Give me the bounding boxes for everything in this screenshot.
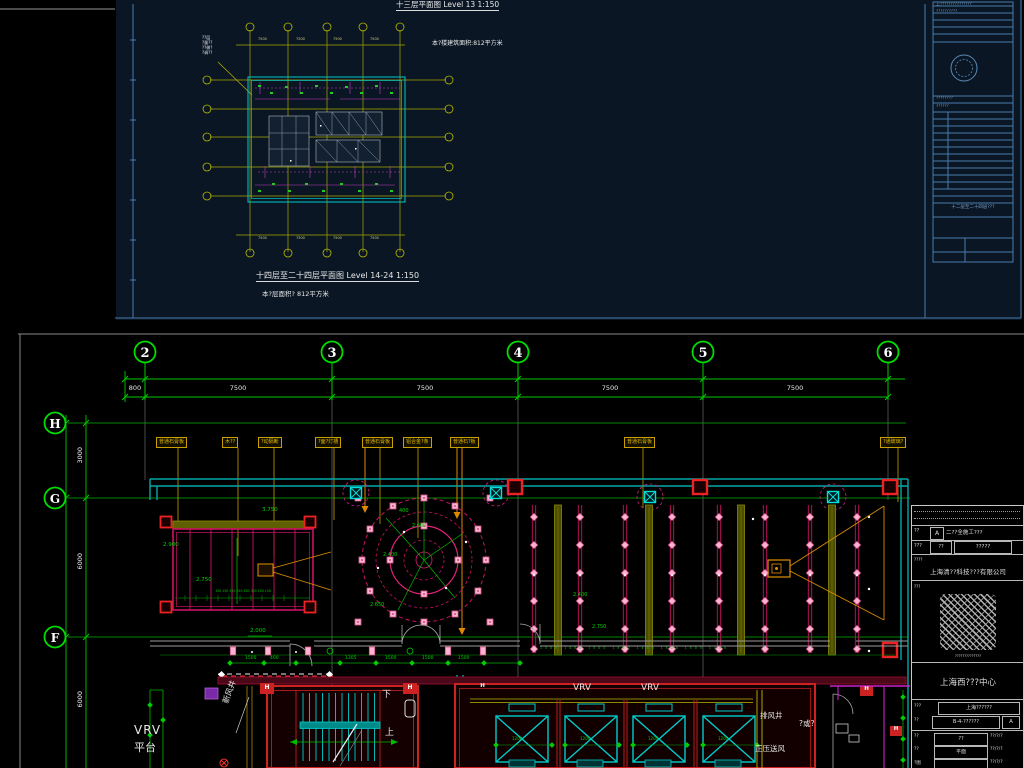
titleblock-row-label: ?? bbox=[914, 747, 919, 752]
elevation-label: 2.400 bbox=[383, 553, 397, 558]
titleblock-row-label: ??? bbox=[914, 543, 922, 549]
revision-cell: A bbox=[1002, 716, 1020, 729]
pressurized-air-label: 正压送风 bbox=[755, 745, 785, 753]
dim-col: 800 bbox=[122, 385, 148, 392]
revision-cell: A bbox=[930, 527, 944, 540]
titleblock-row-label: ?? bbox=[914, 734, 919, 739]
shaft-dim: 1200 bbox=[512, 737, 522, 741]
plan-dim: 7500 bbox=[258, 38, 267, 42]
dim-row: 6000 bbox=[77, 549, 84, 573]
titleblock-firm-line: ???????? bbox=[936, 96, 1012, 100]
sheet-title-level14-24: 十四层至二十四层平面图 Level 14-24 1:150 bbox=[256, 272, 419, 282]
vrv-zone-label: VRV bbox=[641, 684, 659, 693]
floor-dim: 1500 bbox=[422, 657, 433, 662]
floor-dim: 1500 bbox=[458, 657, 469, 662]
elevation-label: 2.650 bbox=[370, 603, 384, 608]
ceiling-callout: 普通石膏板 bbox=[156, 437, 187, 448]
titleblock-cell: ?? bbox=[934, 733, 988, 746]
titleblock-divider bbox=[912, 554, 1024, 555]
hall-dim-row: 1500 1450 1500 1500 1450 1500 1500 1450 bbox=[540, 647, 729, 650]
grid-bubble-H: H bbox=[44, 417, 66, 431]
floor-dim: 1500 bbox=[245, 657, 256, 662]
column-tag: H bbox=[260, 685, 274, 691]
ceiling-callout: ?动隔断 bbox=[258, 437, 282, 448]
grid-bubble-5: 5 bbox=[692, 346, 714, 361]
titleblock-date: ??/?/? bbox=[990, 734, 1003, 739]
column-tag: H bbox=[476, 684, 489, 690]
titleblock-header-line: 上??????????????? bbox=[936, 2, 1012, 6]
floor-dim: 1305 bbox=[345, 657, 356, 662]
titleblock-row-label: ?? bbox=[914, 528, 919, 534]
drawing-number-cell: B-4-?????? bbox=[932, 716, 1000, 729]
elevation-label: 2.750 bbox=[592, 625, 606, 630]
dim-col: 7500 bbox=[772, 385, 818, 392]
plan-note-line: ?调?? bbox=[202, 51, 212, 55]
titleblock-divider bbox=[912, 580, 1024, 581]
grid-bubble-2: 2 bbox=[134, 346, 156, 361]
grid-bubble-3: 3 bbox=[321, 346, 343, 361]
plan-dim: 7500 bbox=[296, 237, 305, 241]
stair-down-label: 下 bbox=[382, 691, 391, 700]
ceiling-callout: 普通石?板 bbox=[450, 437, 479, 448]
dim-row: 3000 bbox=[77, 443, 84, 467]
dim-row: 6000 bbox=[77, 687, 84, 711]
titleblock-row-label: ?? bbox=[914, 718, 919, 723]
titleblock-sheet-title: 十二层至二十四层??? bbox=[934, 206, 1012, 211]
ceiling-callout: 铝合金?条 bbox=[403, 437, 432, 448]
titleblock-note: ???? bbox=[914, 557, 923, 562]
sheet-title-level13: 十三层平面图 Level 13 1:150 bbox=[396, 1, 499, 11]
titleblock-date: ??/?/? bbox=[990, 747, 1003, 752]
elevation-label: 2.000 bbox=[250, 629, 266, 635]
elevation-label: 3.750 bbox=[262, 508, 278, 514]
plan-dim: 7500 bbox=[333, 237, 342, 241]
bottom-sheet-linework bbox=[18, 334, 1024, 768]
plan-dim: 7500 bbox=[296, 38, 305, 42]
vrv-zone-label: VRV bbox=[573, 684, 591, 693]
plan-dim: 7500 bbox=[370, 38, 379, 42]
column-tag: H bbox=[860, 687, 873, 693]
titleblock-cell: ?? bbox=[930, 541, 952, 554]
top-sheet-linework bbox=[0, 0, 1022, 320]
titleblock-firm-line: ?????? bbox=[936, 104, 1012, 108]
ceiling-callout: 普通石膏板 bbox=[362, 437, 393, 448]
titleblock-divider bbox=[912, 699, 1024, 700]
radius-label: 400 bbox=[399, 509, 409, 514]
project-name: 上海西???中心 bbox=[912, 676, 1024, 688]
titleblock-divider bbox=[912, 730, 1024, 731]
grid-bubble-4: 4 bbox=[507, 346, 529, 361]
plan-dim: 7500 bbox=[258, 237, 267, 241]
grid-bubble-F: F bbox=[44, 631, 66, 645]
drawing-titleblock: ?? A 二??全施工??? ??? ?? ????? ???? 上海清??科技… bbox=[911, 505, 1024, 768]
titleblock-divider bbox=[914, 518, 1020, 519]
plan-dim: 7500 bbox=[370, 237, 379, 241]
titleblock-divider bbox=[912, 662, 1024, 663]
titleblock-date: ??/?/? bbox=[990, 760, 1003, 765]
shaft-dim: 1200 bbox=[580, 737, 590, 741]
stamp-caption: ?????????????? bbox=[916, 654, 1020, 658]
titleblock-cell: 上海?????? bbox=[938, 702, 1020, 715]
stair-up-label: 上 bbox=[385, 729, 394, 738]
floor-dim: 400 bbox=[270, 657, 279, 662]
titleblock-header-line: ?????????? bbox=[936, 9, 1012, 13]
room-label: ?或? bbox=[799, 720, 814, 728]
shaft-dim: 1200 bbox=[648, 737, 658, 741]
plan-dim: 7500 bbox=[333, 38, 342, 42]
floor-dim: 1500 bbox=[385, 657, 396, 662]
titleblock-row-label: ??? bbox=[914, 704, 921, 709]
cad-linework bbox=[0, 0, 1024, 768]
elevation-label: 2.600 bbox=[412, 524, 426, 529]
area-note-level13: 本?楼建筑面积:812平方米 bbox=[432, 41, 503, 47]
area-note-level14-24: 本?层面积? 812平方米 bbox=[262, 291, 329, 298]
ceiling-callout: ?通玻璃? bbox=[880, 437, 906, 448]
shaft-dim: 1200 bbox=[718, 737, 728, 741]
titleblock-divider bbox=[914, 511, 1020, 512]
dim-col: 7500 bbox=[215, 385, 261, 392]
company-stamp bbox=[940, 594, 996, 650]
titleblock-cell bbox=[934, 759, 988, 768]
cad-preview-page: 十三层平面图 Level 13 1:150 本?楼建筑面积:812平方米 ??层… bbox=[0, 0, 1024, 768]
dim-col: 7500 bbox=[402, 385, 448, 392]
column-tag: H bbox=[403, 685, 417, 691]
ceiling-callout: 木?? bbox=[222, 437, 238, 448]
exhaust-shaft-label: 排风井 bbox=[760, 712, 783, 720]
vrv-platform-label-line2: 平台 bbox=[134, 742, 156, 753]
titleblock-divider bbox=[912, 525, 1024, 526]
grid-bubble-G: G bbox=[44, 492, 66, 506]
ceiling-callout: 普通石膏板 bbox=[624, 437, 655, 448]
design-company-name: 上海清??科技???有限公司 bbox=[912, 566, 1024, 576]
titleblock-cell: 平面 bbox=[934, 746, 988, 759]
titleblock-row-label: ?图 bbox=[914, 760, 921, 766]
titleblock-cell: ????? bbox=[954, 541, 1012, 554]
titleblock-note: ??? bbox=[914, 584, 920, 589]
vrv-platform-label-line1: VRV bbox=[134, 724, 161, 736]
elevation-label: 2.750 bbox=[196, 578, 212, 584]
elevation-label: 2.400 bbox=[573, 593, 587, 598]
dim-col: 7500 bbox=[587, 385, 633, 392]
ceiling-callout: ?面?灯槽 bbox=[315, 437, 341, 448]
elevation-label: 2.900 bbox=[163, 543, 179, 549]
batten-dim-row: 150 150 300 150 150 300 150 150 bbox=[176, 590, 310, 593]
drawing-stage-label: 二??全施工??? bbox=[946, 528, 983, 536]
grid-bubble-6: 6 bbox=[877, 346, 899, 361]
column-tag: H bbox=[890, 727, 902, 733]
